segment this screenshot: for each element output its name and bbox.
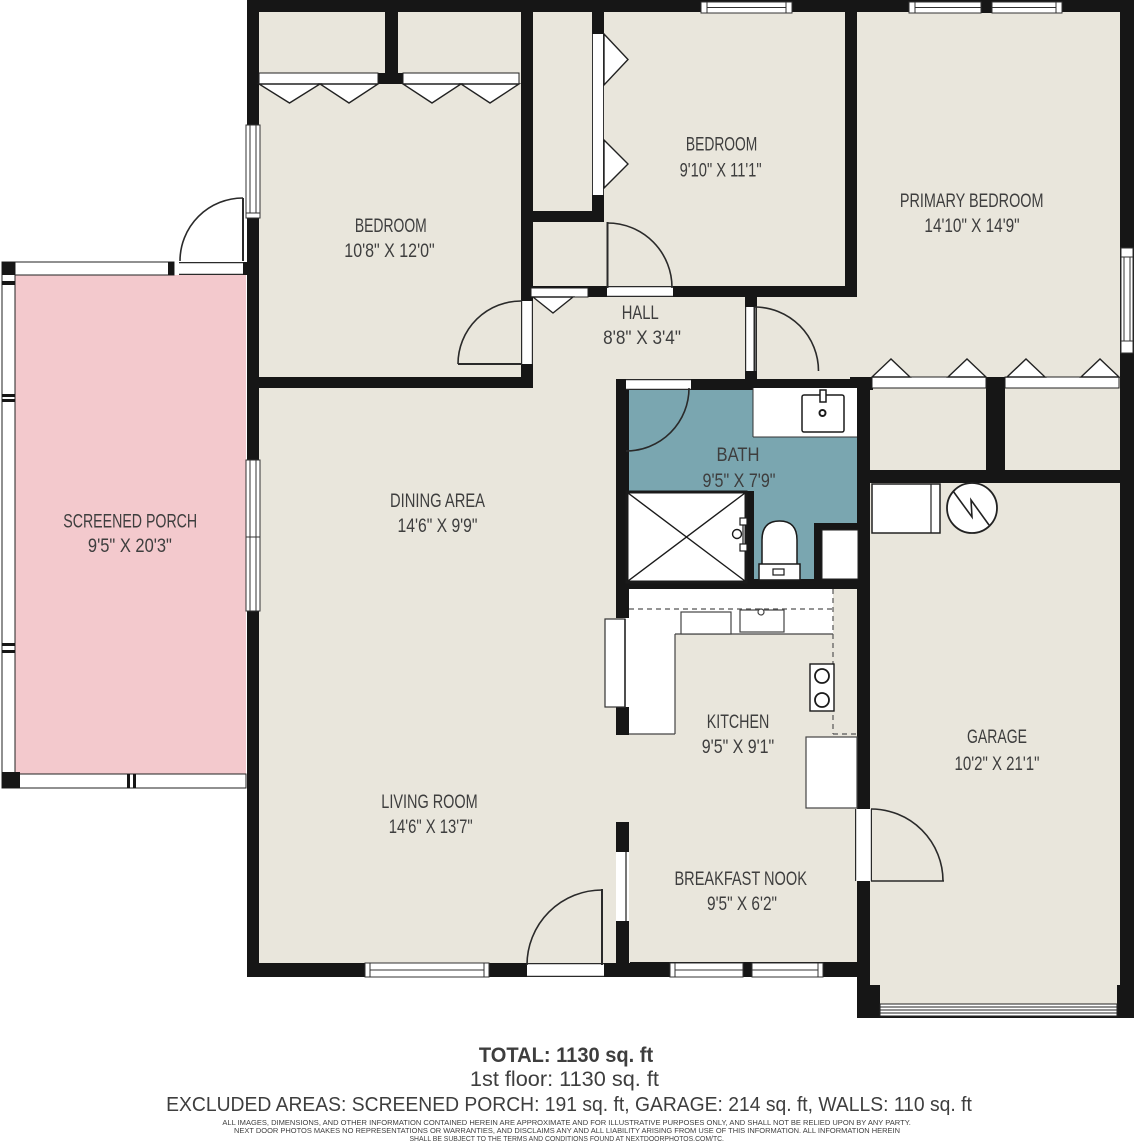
svg-text:SHALL BE SUBJECT TO THE TERMS: SHALL BE SUBJECT TO THE TERMS AND CONDIT… xyxy=(409,1135,724,1143)
svg-text:BREAKFAST NOOK: BREAKFAST NOOK xyxy=(674,868,807,889)
svg-text:NEXT DOOR PHOTOS MAKES NO REPR: NEXT DOOR PHOTOS MAKES NO REPRESENTATION… xyxy=(234,1126,900,1135)
svg-text:9'5" X 6'2": 9'5" X 6'2" xyxy=(707,892,777,914)
svg-text:HALL: HALL xyxy=(622,302,659,323)
svg-text:EXCLUDED AREAS: SCREENED PORCH: EXCLUDED AREAS: SCREENED PORCH: 191 sq. … xyxy=(166,1094,972,1117)
svg-text:10'2" X 21'1": 10'2" X 21'1" xyxy=(955,752,1040,774)
svg-text:9'5" X 20'3": 9'5" X 20'3" xyxy=(88,535,172,557)
svg-text:PRIMARY BEDROOM: PRIMARY BEDROOM xyxy=(900,190,1044,211)
svg-text:KITCHEN: KITCHEN xyxy=(707,711,769,732)
svg-text:GARAGE: GARAGE xyxy=(967,726,1027,748)
svg-text:DINING AREA: DINING AREA xyxy=(390,490,486,511)
svg-text:14'6" X 9'9": 14'6" X 9'9" xyxy=(398,514,478,536)
svg-text:10'8" X 12'0": 10'8" X 12'0" xyxy=(344,240,434,262)
svg-text:LIVING ROOM: LIVING ROOM xyxy=(381,791,477,812)
svg-text:1st floor: 1130 sq. ft: 1st floor: 1130 sq. ft xyxy=(470,1067,659,1091)
svg-text:14'6" X 13'7": 14'6" X 13'7" xyxy=(389,815,473,837)
svg-text:9'5" X 7'9": 9'5" X 7'9" xyxy=(703,470,776,492)
svg-text:BEDROOM: BEDROOM xyxy=(686,133,757,155)
svg-text:BATH: BATH xyxy=(716,444,759,465)
svg-text:14'10" X 14'9": 14'10" X 14'9" xyxy=(924,214,1019,236)
svg-text:BEDROOM: BEDROOM xyxy=(355,215,427,237)
svg-text:9'5" X 9'1": 9'5" X 9'1" xyxy=(702,735,774,757)
svg-text:TOTAL: 1130 sq. ft: TOTAL: 1130 sq. ft xyxy=(479,1044,653,1068)
svg-text:8'8" X 3'4": 8'8" X 3'4" xyxy=(603,326,681,348)
svg-text:9'10" X 11'1": 9'10" X 11'1" xyxy=(680,158,762,181)
svg-text:SCREENED PORCH: SCREENED PORCH xyxy=(63,511,197,533)
